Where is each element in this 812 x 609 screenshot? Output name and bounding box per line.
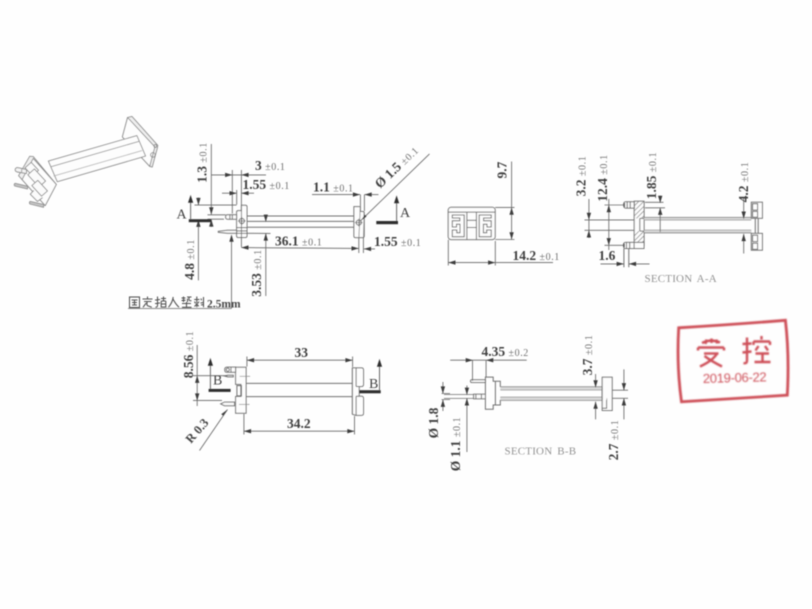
svg-text:B: B — [213, 374, 222, 389]
svg-text:A: A — [177, 208, 188, 223]
svg-text:B: B — [369, 377, 378, 392]
svg-text:A: A — [400, 206, 411, 221]
svg-text:9.7: 9.7 — [495, 161, 510, 178]
svg-text:2.5mm: 2.5mm — [207, 299, 241, 311]
svg-text:34.2: 34.2 — [287, 416, 311, 431]
svg-text:SECTION B-B: SECTION B-B — [505, 446, 577, 458]
svg-text:2019-06-22: 2019-06-22 — [703, 369, 767, 386]
svg-text:Ø 1.8: Ø 1.8 — [426, 407, 441, 438]
svg-text:33: 33 — [295, 345, 309, 360]
svg-text:SECTION A-A: SECTION A-A — [645, 273, 717, 285]
svg-text:1.6: 1.6 — [599, 248, 616, 263]
